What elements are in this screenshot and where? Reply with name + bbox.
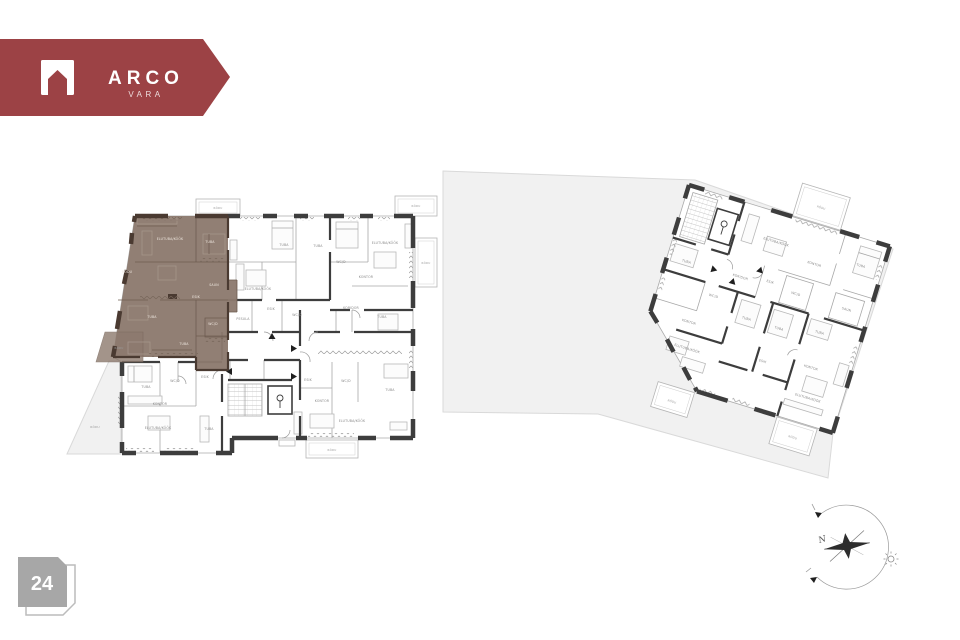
sun-icon: [884, 552, 899, 567]
room-label: TUBA: [203, 427, 214, 431]
room-label: RÕDU: [422, 260, 431, 265]
site-labels: RÕDU: [90, 424, 100, 429]
room-label: TUBA: [140, 385, 151, 389]
room-label: PESULA: [236, 317, 250, 321]
room-label: WC/D: [208, 322, 218, 326]
compass-north-label: N: [817, 534, 828, 546]
room-label: ESIK: [267, 307, 275, 311]
compass-tick-marks: [806, 504, 815, 572]
room-label: ESIK: [192, 295, 200, 299]
room-label: ELUTUBA/KÖÖK: [339, 418, 366, 423]
room-label: RÕDU: [214, 205, 223, 210]
room-label: TUBA: [204, 240, 215, 244]
room-label: ELUTUBA/KÖÖK: [245, 286, 272, 291]
room-label: SAUN: [209, 283, 219, 287]
plan-canvas: ELUTUBA/KÖÖKTUBARÕDUSAUNESIKTUBAWC/DTUBA…: [0, 0, 960, 640]
compass: N: [806, 504, 899, 589]
room-label: ELUTUBA/KÖÖK: [372, 240, 399, 245]
room-label: ESIK: [201, 375, 209, 379]
highlighted-apartment[interactable]: ELUTUBA/KÖÖKTUBARÕDUSAUNESIKTUBAWC/DTUBA…: [96, 216, 237, 370]
room-label: TUBA: [178, 342, 189, 346]
room-label: KONTOR: [153, 402, 168, 406]
room-label: KONTOR: [359, 275, 374, 279]
room-label: WC/D: [170, 379, 180, 383]
room-label: KONTOR: [315, 399, 330, 403]
stairwell: [228, 384, 292, 416]
room-label: RÕDU: [122, 269, 133, 274]
room-label: TUBA: [312, 244, 323, 248]
floor-number: 24: [31, 573, 54, 595]
compass-arrowhead-bottom: [810, 577, 817, 583]
floorplan-viewer: ELUTUBA/KÖÖKTUBARÕDUSAUNESIKTUBAWC/DTUBA…: [0, 0, 960, 640]
room-label: ELUTUBA/KÖÖK: [145, 425, 172, 430]
room-label: ESIK: [304, 378, 312, 382]
arco-vara-logo: ARCO VARA: [0, 39, 230, 116]
compass-rose: [822, 530, 871, 562]
room-label: RÕDU: [115, 345, 124, 350]
room-label: TUBA: [384, 388, 395, 392]
compass-arrowhead-top: [815, 512, 822, 518]
brand-name: ARCO: [108, 68, 184, 89]
elevator: [268, 386, 292, 414]
room-label: WC/D: [336, 260, 346, 264]
room-label: TUBA: [278, 243, 289, 247]
room-label: TUBA: [376, 315, 387, 319]
room-label: WC/D: [341, 379, 351, 383]
room-label: WC/D: [292, 313, 302, 317]
brand-tagline: VARA: [128, 90, 163, 99]
room-label: RÕDU: [328, 447, 337, 452]
room-label: RÕDU: [90, 424, 100, 429]
room-label: ELUTUBA/KÖÖK: [157, 236, 184, 241]
room-label: KORIDOR: [343, 306, 359, 310]
floor-badge[interactable]: 24: [18, 557, 75, 615]
room-label: TUBA: [146, 315, 157, 319]
room-label: RÕDU: [412, 203, 421, 208]
house-icon: [41, 60, 74, 95]
